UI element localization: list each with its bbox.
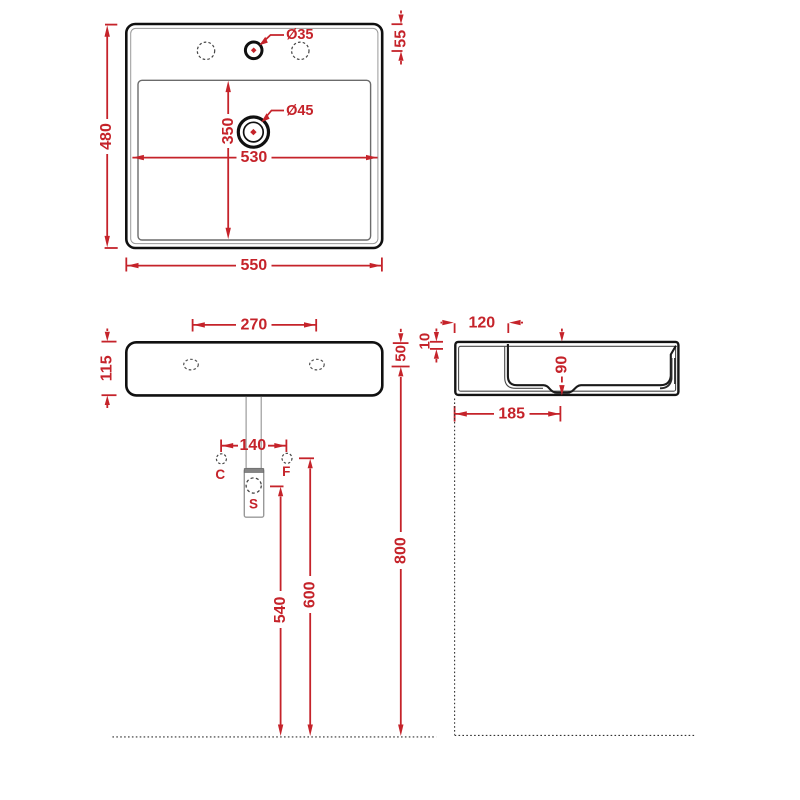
svg-text:600: 600 bbox=[302, 581, 319, 608]
svg-text:90: 90 bbox=[553, 356, 570, 374]
svg-text:F: F bbox=[282, 464, 290, 479]
svg-text:Ø45: Ø45 bbox=[286, 103, 313, 119]
svg-text:550: 550 bbox=[240, 257, 267, 274]
svg-text:185: 185 bbox=[498, 405, 525, 422]
svg-text:480: 480 bbox=[98, 123, 115, 150]
svg-text:50: 50 bbox=[392, 345, 409, 362]
svg-text:800: 800 bbox=[392, 537, 409, 564]
svg-text:540: 540 bbox=[272, 596, 289, 623]
svg-text:350: 350 bbox=[220, 118, 237, 145]
svg-text:Ø35: Ø35 bbox=[286, 27, 313, 43]
svg-text:S: S bbox=[249, 496, 258, 511]
svg-text:C: C bbox=[215, 467, 225, 482]
svg-text:120: 120 bbox=[468, 315, 495, 332]
svg-text:270: 270 bbox=[241, 316, 268, 333]
svg-text:530: 530 bbox=[241, 149, 268, 166]
svg-text:115: 115 bbox=[98, 355, 115, 381]
svg-text:10: 10 bbox=[416, 333, 433, 350]
svg-text:140: 140 bbox=[239, 437, 266, 454]
svg-text:55: 55 bbox=[393, 30, 410, 48]
